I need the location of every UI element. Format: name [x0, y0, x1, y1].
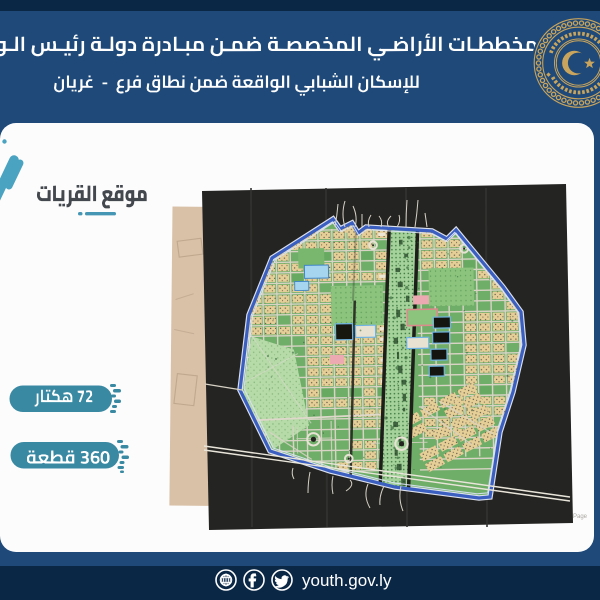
svg-text:youth.gov.ly: youth.gov.ly	[302, 571, 392, 590]
svg-text:Page: Page	[573, 514, 588, 520]
